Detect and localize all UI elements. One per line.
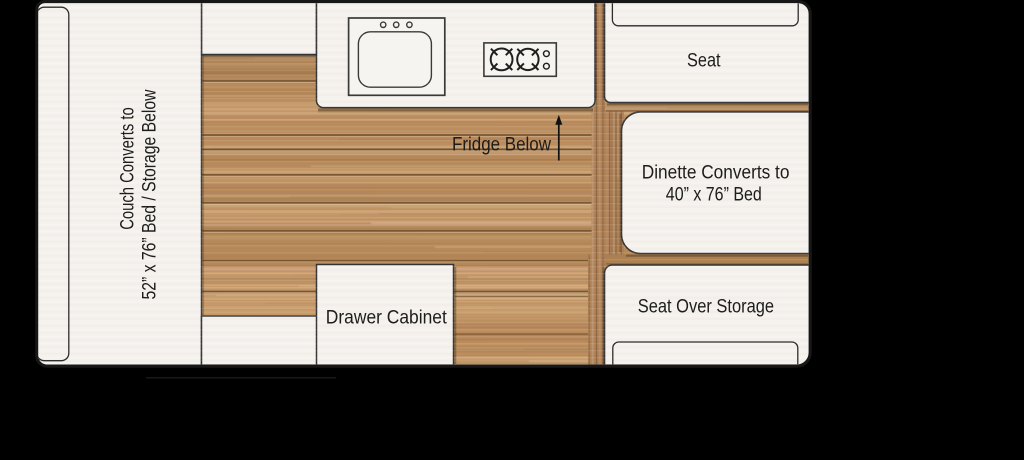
- svg-text:Dinette Converts to: Dinette Converts to: [642, 162, 790, 183]
- svg-text:Couch Converts to: Couch Converts to: [118, 107, 139, 230]
- svg-text:Drawer Cabinet: Drawer Cabinet: [326, 308, 448, 329]
- svg-text:52” x 76” Bed / Storage Below: 52” x 76” Bed / Storage Below: [140, 89, 161, 299]
- svg-text:40” x 76” Bed: 40” x 76” Bed: [666, 184, 762, 205]
- svg-text:Seat Over Storage: Seat Over Storage: [638, 296, 774, 317]
- svg-text:Fridge Below: Fridge Below: [452, 134, 551, 155]
- svg-text:Seat: Seat: [687, 50, 721, 71]
